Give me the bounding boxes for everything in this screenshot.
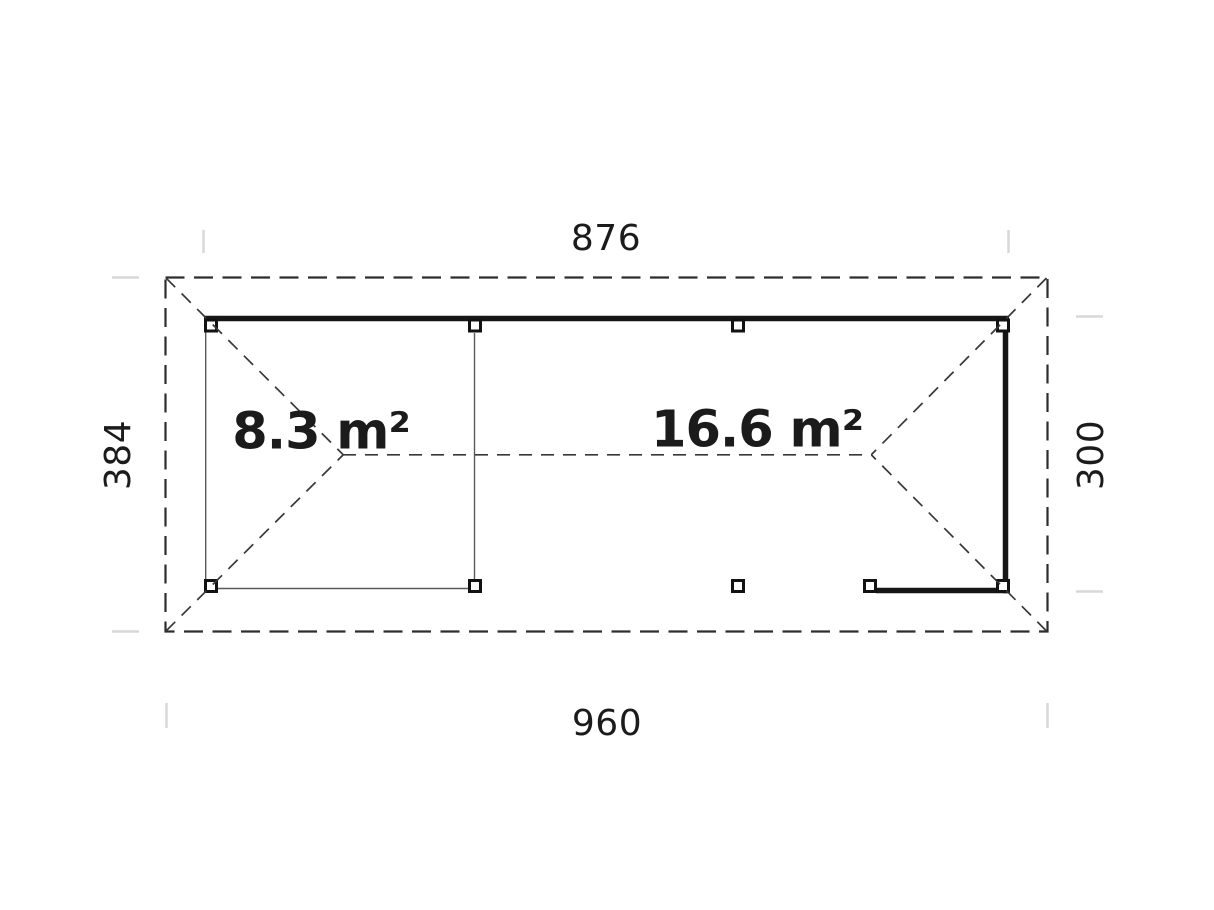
post-front-left — [206, 320, 217, 331]
post-rear-mid-3 — [865, 581, 876, 592]
post-rear-right — [998, 581, 1009, 592]
post-rear-mid-1 — [470, 581, 481, 592]
area-label-room: 8.3 m² — [232, 407, 410, 458]
dimension-bottom-label: 960 — [572, 706, 642, 742]
hip-line-top-right — [872, 278, 1047, 455]
dimension-right-label: 300 — [1074, 420, 1110, 490]
dimension-top-label: 876 — [571, 221, 641, 257]
hip-line-bottom-left — [166, 455, 343, 631]
floor-plan-drawing — [0, 0, 1214, 910]
floor-plan-canvas: 876 960 384 300 8.3 m² 16.6 m² — [0, 0, 1214, 910]
dimension-left-label: 384 — [101, 420, 137, 490]
post-front-mid-2 — [733, 320, 744, 331]
hip-line-bottom-right — [872, 455, 1047, 631]
area-label-terrace: 16.6 m² — [651, 405, 863, 456]
extension-ticks — [112, 230, 1103, 728]
post-front-mid-1 — [470, 320, 481, 331]
post-rear-mid-2 — [733, 581, 744, 592]
